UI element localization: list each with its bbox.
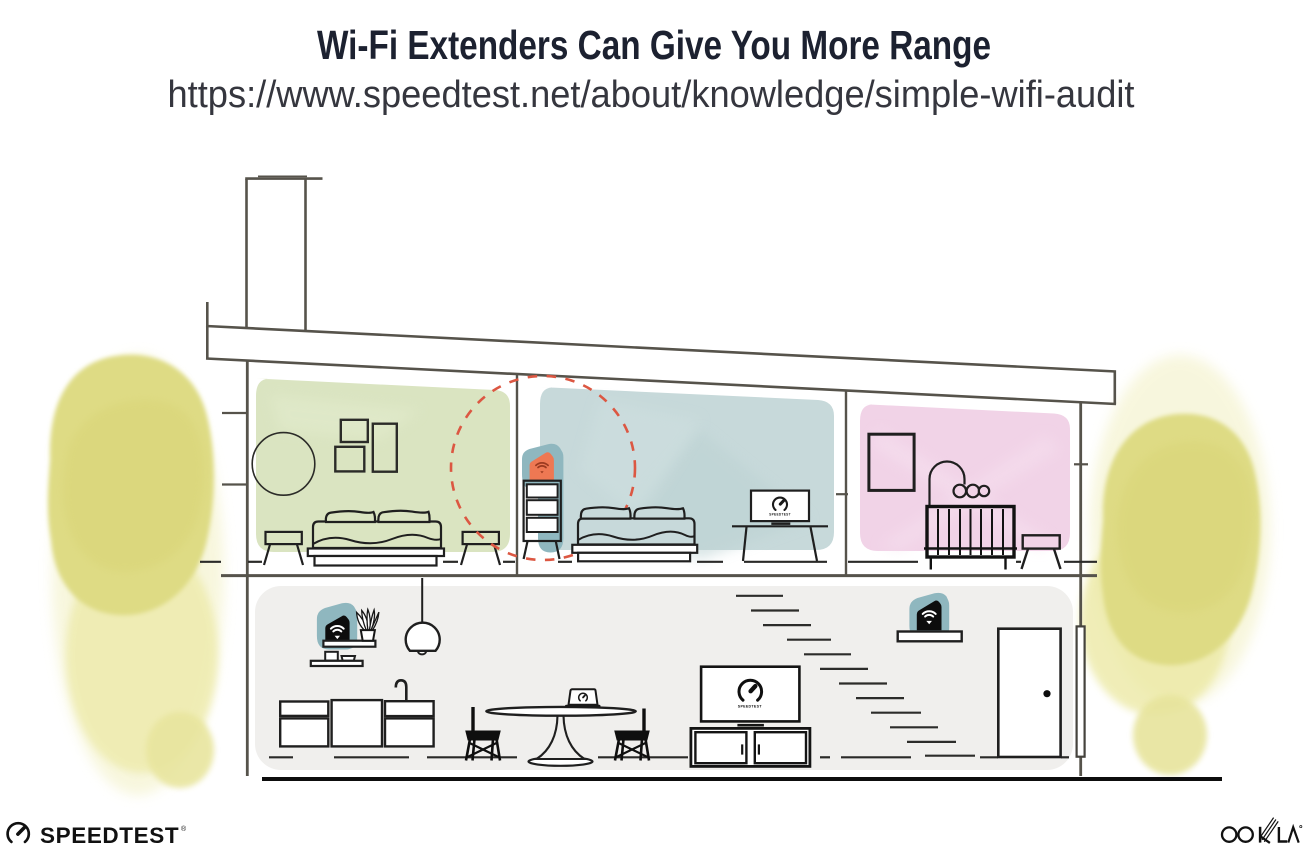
svg-text:Wi-Fi Extenders Can Give You M: Wi-Fi Extenders Can Give You More Range bbox=[317, 22, 991, 68]
svg-text:SPEEDTEST: SPEEDTEST bbox=[769, 513, 791, 517]
svg-text:SPEEDTEST: SPEEDTEST bbox=[738, 705, 763, 709]
svg-text:https://www.speedtest.net/abou: https://www.speedtest.net/about/knowledg… bbox=[168, 74, 1135, 116]
svg-text:®: ® bbox=[181, 825, 187, 833]
svg-text:SPEEDTEST: SPEEDTEST bbox=[40, 823, 179, 848]
